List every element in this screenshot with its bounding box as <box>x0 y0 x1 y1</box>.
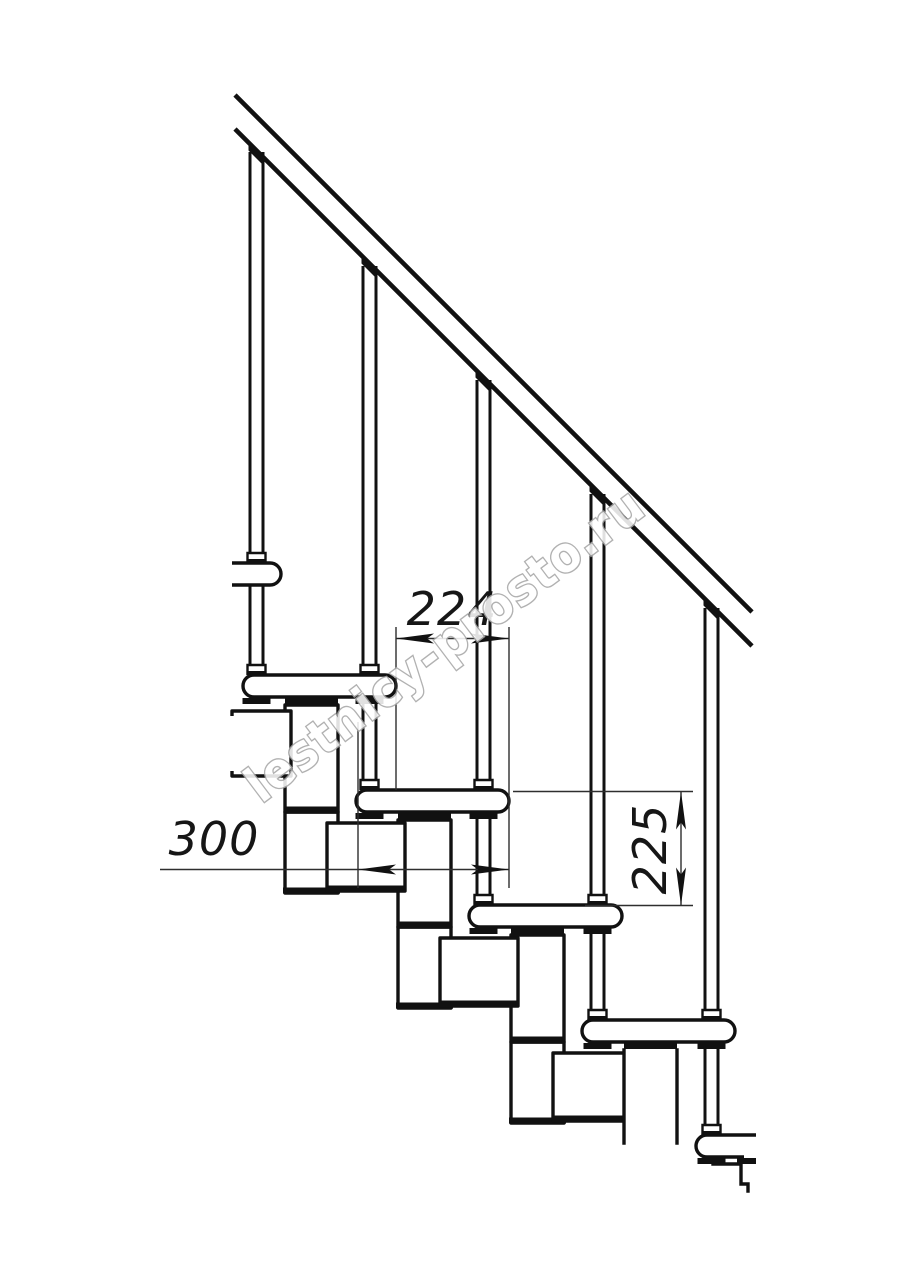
tread-top-cut <box>232 563 281 585</box>
module-housing-cut <box>713 1164 748 1191</box>
tread-bottom-cut <box>696 1135 756 1157</box>
handrail <box>235 95 752 646</box>
tread <box>469 905 622 927</box>
dimension-label-rise: 225 <box>623 804 677 895</box>
dimension-label-depth: 300 <box>169 812 260 866</box>
module-housing <box>440 938 518 1006</box>
watermark-text: lestnicy-prosto.ru <box>234 476 656 813</box>
module-housing <box>553 1053 631 1121</box>
tread <box>582 1020 735 1042</box>
modular-staircase-side-view-drawing: 224 300 225 lestnicy-prosto.ru <box>0 0 914 1280</box>
tread <box>356 790 509 812</box>
module-housing <box>327 823 405 891</box>
staircase-technical-drawing-page: 224 300 225 lestnicy-prosto.ru <box>0 0 914 1280</box>
